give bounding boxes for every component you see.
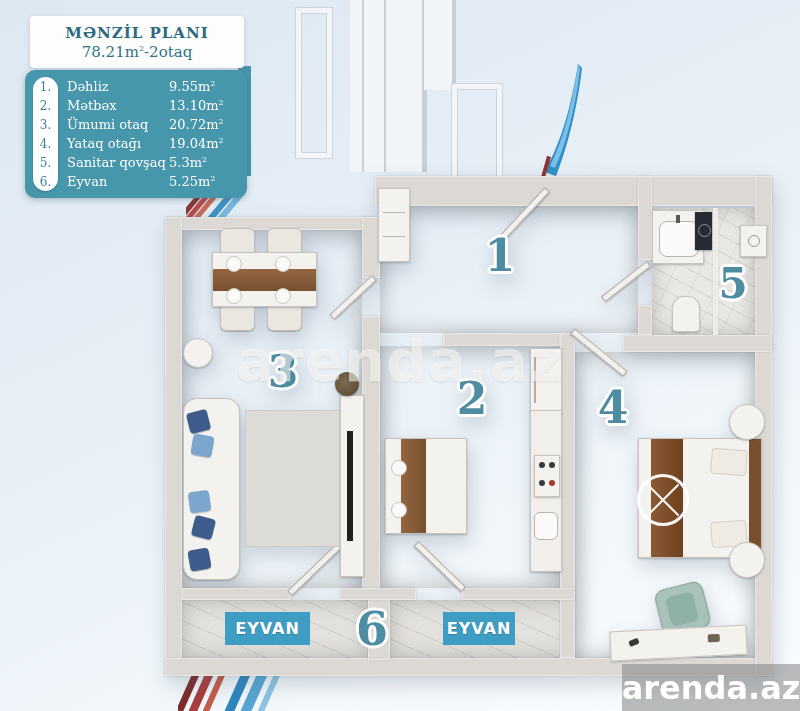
shower-head: [748, 235, 760, 247]
wall-left: [165, 217, 182, 676]
burner: [539, 462, 545, 468]
wardrobe-shelf: [383, 212, 405, 213]
faucet: [676, 215, 680, 223]
bed-pillow: [710, 448, 748, 476]
flyer-canvas: { "header": { "title": "MƏNZİL PLANI", "…: [0, 0, 800, 711]
legend-row: Dəhliz 9.55m2: [67, 77, 237, 96]
legend-rows: Dəhliz 9.55m2 Mətbəx 13.10m2 Ümumi otaq …: [67, 77, 237, 191]
legend-row: Mətbəx 13.10m2: [67, 96, 237, 115]
building-silhouette: [364, 0, 388, 172]
area-sup: 2: [210, 174, 215, 183]
room-name: Eyvan: [67, 174, 169, 189]
stove: [534, 455, 560, 497]
table-runner: [401, 439, 426, 533]
sofa-pillow: [186, 409, 211, 434]
wardrobe-shelf: [383, 236, 405, 237]
area-value: 20.72m: [169, 117, 219, 132]
room-name: Sanitar qovşaq: [67, 155, 169, 170]
legend-number: 6.: [33, 172, 58, 191]
balcony-left-label: EYVAN: [225, 612, 310, 645]
sofa-pillow: [188, 490, 212, 514]
legend-row: Yataq otağı 19.04m2: [67, 134, 237, 153]
wall-bedroom-top: [623, 335, 772, 352]
kitchen-sink: [534, 512, 558, 540]
legend-row: Sanitar qovşaq 5.3m2: [67, 153, 237, 172]
dining-chair: [220, 303, 255, 331]
arenda-logo-text: arenda.az: [622, 669, 800, 707]
arenda-logo-strip: arenda.az: [622, 664, 800, 711]
sofa-pillow: [191, 515, 216, 540]
sofa-pillow: [190, 433, 214, 457]
area-sup: 2: [202, 155, 207, 164]
legend-number: 5.: [33, 153, 58, 172]
dining-chair: [267, 303, 302, 331]
balcony-right-label: EYVAN: [443, 612, 515, 645]
area-value: 9.55m: [169, 79, 210, 94]
plan-header-card: MƏNZİL PLANI 78.21m2-2otaq: [30, 16, 244, 68]
plate: [391, 502, 407, 518]
legend-number-strip: 1. 2. 3. 4. 5. 6.: [33, 77, 58, 191]
bath-sink: [659, 221, 699, 257]
room-name: Mətbəx: [67, 98, 169, 113]
sofa: [183, 398, 240, 580]
subtitle-rest: -2otaq: [144, 43, 192, 61]
area-value: 5.3m: [169, 155, 202, 170]
side-table: [183, 338, 213, 368]
burner: [549, 480, 555, 486]
room-number-bath: 5: [718, 263, 747, 305]
plate: [226, 288, 242, 304]
room-name: Dəhliz: [67, 79, 169, 94]
armchair-seat: [665, 591, 699, 627]
room-number-bedroom: 4: [598, 386, 629, 430]
desk-item: [708, 634, 720, 643]
plate: [275, 256, 291, 272]
wall-balcony-top-a: [182, 588, 290, 600]
wall-balcony-top-b: [340, 588, 416, 600]
ceiling-fan: [637, 474, 689, 526]
room-area: 5.25m2: [169, 174, 237, 189]
desk-item: [628, 638, 640, 647]
wardrobe: [378, 188, 410, 262]
legend-panel: 1. 2. 3. 4. 5. 6. Dəhliz 9.55m2 Mətbəx 1…: [25, 70, 247, 198]
kitchen-table: [385, 438, 467, 534]
building-silhouette: [296, 8, 332, 158]
burner: [539, 480, 545, 486]
room-area: 13.10m2: [169, 98, 237, 113]
legend-number: 1.: [33, 77, 58, 96]
plan-title: MƏNZİL PLANI: [30, 24, 244, 42]
wall-balcony-top-c: [462, 588, 575, 600]
room-number-balcony: 6: [356, 606, 388, 652]
plate: [226, 256, 242, 272]
room-number-hall: 1: [485, 234, 516, 278]
floor-plan: 1 2 3 4 5 6 EYVAN EYVAN: [163, 172, 772, 676]
bed-headboard: [749, 439, 761, 557]
blue-swoosh: [538, 60, 586, 178]
room-area: 20.72m2: [169, 117, 237, 132]
tv-screen: [347, 431, 353, 541]
room-name: Ümumi otaq: [67, 117, 169, 132]
legend-row: Ümumi otaq 20.72m2: [67, 115, 237, 134]
washing-machine: [695, 212, 712, 250]
area-sup: 2: [210, 79, 215, 88]
sofa-pillow: [187, 547, 211, 571]
area-sup: 2: [219, 98, 224, 107]
building-silhouette: [424, 0, 456, 90]
legend-number: 4.: [33, 134, 58, 153]
washer-door: [698, 224, 711, 237]
table-runner: [213, 269, 316, 291]
burner: [549, 462, 555, 468]
area-value: 19.04m: [169, 136, 219, 151]
legend-row: Eyvan 5.25m2: [67, 172, 237, 191]
legend-number: 2.: [33, 96, 58, 115]
watermark: arenda.az: [236, 328, 576, 394]
wall-hall-bath-a: [638, 176, 652, 260]
subtitle-area: 78.21m: [82, 43, 139, 61]
nightstand: [729, 542, 765, 578]
building-silhouette: [386, 0, 427, 172]
toilet: [672, 296, 700, 332]
area-sup: 2: [219, 136, 224, 145]
plate: [391, 460, 407, 476]
room-area: 19.04m2: [169, 136, 237, 151]
area-sup: 2: [219, 117, 224, 126]
room-name: Yataq otağı: [67, 136, 169, 151]
area-value: 13.10m: [169, 98, 219, 113]
room-area: 9.55m2: [169, 79, 237, 94]
building-silhouette: [452, 84, 502, 182]
plan-subtitle: 78.21m2-2otaq: [30, 43, 244, 61]
tv-console: [340, 395, 364, 577]
wall-bath-divider: [713, 208, 718, 335]
shower-tray: [740, 225, 767, 257]
legend-number: 3.: [33, 115, 58, 134]
plate: [275, 288, 291, 304]
wall-top: [375, 176, 772, 206]
room-area: 5.3m2: [169, 155, 237, 170]
wall-hall-bath-b: [638, 305, 652, 335]
nightstand: [729, 404, 765, 440]
area-value: 5.25m: [169, 174, 210, 189]
